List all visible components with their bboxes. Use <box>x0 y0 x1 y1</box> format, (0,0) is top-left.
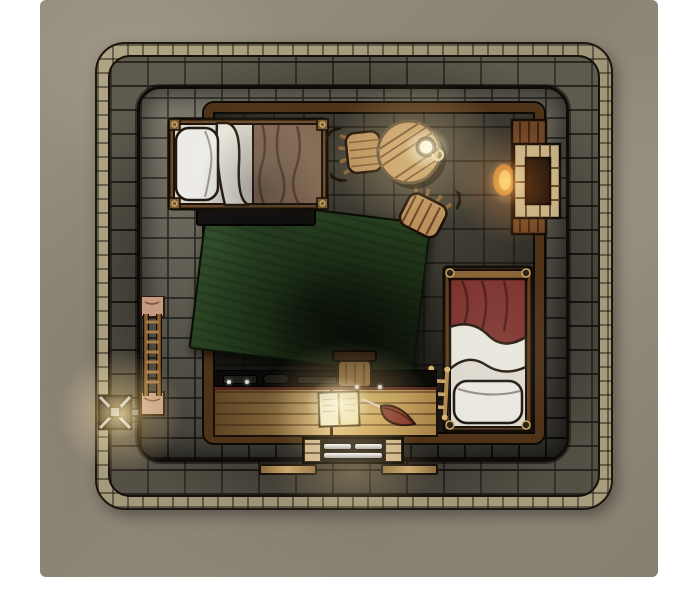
round-table[interactable] <box>372 115 450 193</box>
torch-sconce[interactable] <box>93 391 141 437</box>
pillow <box>454 381 522 423</box>
bed-brown[interactable] <box>167 113 330 235</box>
fireplace[interactable] <box>490 116 564 238</box>
ledge-left[interactable] <box>259 464 317 475</box>
window-glass-bar <box>355 444 382 449</box>
bed-red[interactable] <box>442 265 534 435</box>
ledge-right[interactable] <box>381 464 438 475</box>
window-glass-bar <box>324 453 382 458</box>
window-stone-block <box>304 439 321 462</box>
battle-map <box>0 0 700 600</box>
tool-shelf[interactable] <box>214 370 437 387</box>
highlight-dot <box>378 385 382 389</box>
ladder-wall[interactable] <box>140 296 165 416</box>
window-glass-bar <box>324 444 351 449</box>
under-bed-box <box>197 209 315 225</box>
quill[interactable] <box>359 396 417 428</box>
desk-chair[interactable] <box>331 349 378 389</box>
window-stone-block <box>385 439 402 462</box>
window-bottom[interactable] <box>302 437 404 464</box>
iron-pot-icon <box>263 374 289 384</box>
open-book[interactable] <box>316 388 362 430</box>
highlight-dot <box>245 380 249 384</box>
highlight-dot <box>227 380 231 384</box>
